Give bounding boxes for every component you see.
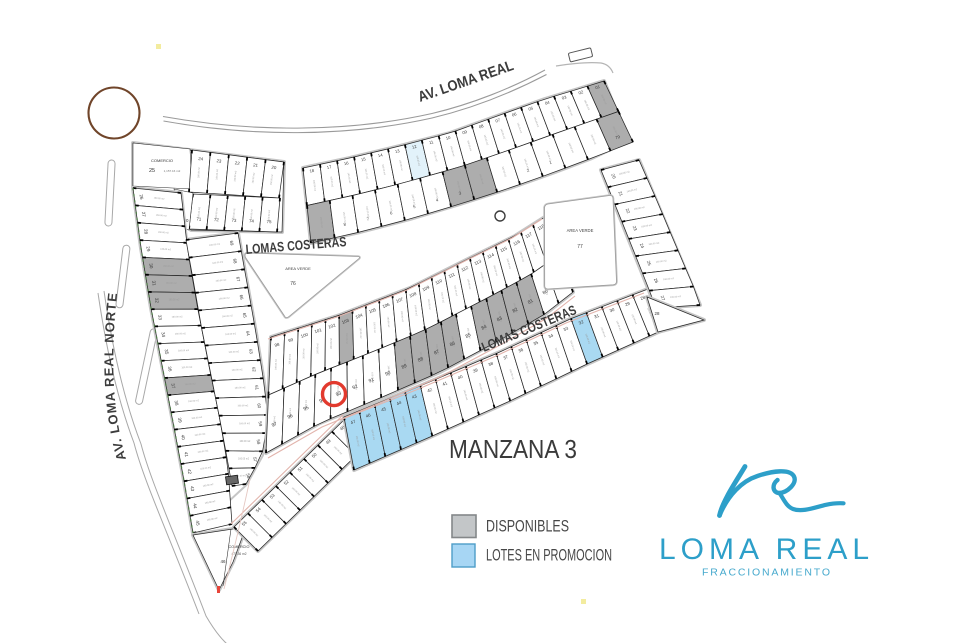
svg-text:160.00 m2: 160.00 m2 <box>303 348 305 360</box>
svg-text:71: 71 <box>196 216 202 221</box>
svg-text:25: 25 <box>149 168 155 174</box>
svg-text:73: 73 <box>231 218 237 223</box>
svg-text:160.00 m2: 160.00 m2 <box>237 405 249 407</box>
svg-text:LOMA REAL: LOMA REAL <box>659 533 869 566</box>
svg-text:COMERCIO: COMERCIO <box>229 545 250 549</box>
svg-text:AREA VERDE: AREA VERDE <box>567 228 594 233</box>
svg-text:DISPONIBLES: DISPONIBLES <box>486 517 569 536</box>
svg-text:160.00 m2: 160.00 m2 <box>178 350 190 352</box>
svg-text:160.00 m2: 160.00 m2 <box>317 342 319 354</box>
svg-text:77: 77 <box>577 244 583 250</box>
svg-text:160.00 m2: 160.00 m2 <box>239 423 251 425</box>
svg-text:FRACCIONAMIENTO: FRACCIONAMIENTO <box>702 567 830 579</box>
svg-text:160.00 m2: 160.00 m2 <box>238 459 250 461</box>
svg-text:160.00 m2: 160.00 m2 <box>275 358 277 370</box>
svg-text:160.00 m2: 160.00 m2 <box>235 387 247 389</box>
svg-text:76: 76 <box>290 281 296 287</box>
svg-text:160.00 m2: 160.00 m2 <box>166 283 178 285</box>
svg-text:160.00 m2: 160.00 m2 <box>172 316 184 318</box>
svg-text:AREA VERDE: AREA VERDE <box>285 266 311 271</box>
svg-text:160.00 m2: 160.00 m2 <box>175 333 187 335</box>
svg-text:160.00 m2: 160.00 m2 <box>345 333 347 345</box>
svg-text:160.00 m2: 160.00 m2 <box>359 328 361 340</box>
svg-text:72: 72 <box>214 217 220 222</box>
svg-text:75: 75 <box>267 219 273 224</box>
svg-text:74: 74 <box>249 218 255 223</box>
svg-text:28: 28 <box>655 311 660 316</box>
svg-text:471.36 m2: 471.36 m2 <box>231 552 246 556</box>
svg-text:MANZANA 3: MANZANA 3 <box>449 434 577 464</box>
svg-text:160.00 m2: 160.00 m2 <box>163 266 175 268</box>
svg-text:COMERCIO: COMERCIO <box>151 158 173 163</box>
svg-text:160.00 m2: 160.00 m2 <box>331 337 333 349</box>
svg-text:LOTES EN PROMOCION: LOTES EN PROMOCION <box>486 546 612 565</box>
svg-text:160.00 m2: 160.00 m2 <box>239 441 251 443</box>
svg-text:160.00 m2: 160.00 m2 <box>169 300 181 302</box>
svg-text:1,157.16 m2: 1,157.16 m2 <box>164 169 181 173</box>
svg-text:160.00 m2: 160.00 m2 <box>289 353 291 365</box>
svg-text:46: 46 <box>220 559 226 564</box>
